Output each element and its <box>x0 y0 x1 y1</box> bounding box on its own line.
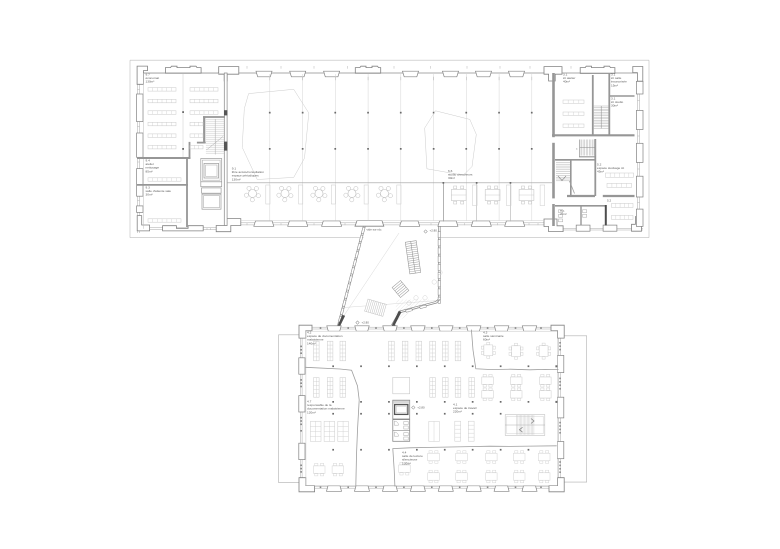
svg-text:130m²: 130m² <box>232 177 241 181</box>
svg-text:120m²: 120m² <box>307 410 316 414</box>
svg-text:85m²: 85m² <box>146 169 153 173</box>
svg-text:45m²: 45m² <box>597 170 604 174</box>
svg-text:5.2: 5.2 <box>607 199 612 203</box>
svg-text:60m²: 60m² <box>483 338 490 342</box>
svg-text:15m²: 15m² <box>611 83 618 87</box>
svg-text:30m²: 30m² <box>146 193 153 197</box>
svg-text:120m²: 120m² <box>402 461 411 465</box>
svg-text:+2.80: +2.80 <box>417 406 425 410</box>
svg-text:+2.80: +2.80 <box>362 321 370 325</box>
svg-text:+2.80: +2.80 <box>430 229 438 233</box>
svg-text:130m²: 130m² <box>146 80 155 84</box>
svg-text:vide sur rdc: vide sur rdc <box>367 228 382 232</box>
svg-text:140m²: 140m² <box>307 341 316 345</box>
svg-text:30m²: 30m² <box>611 104 618 108</box>
svg-text:220m²: 220m² <box>453 410 462 414</box>
svg-text:40m²: 40m² <box>563 80 570 84</box>
svg-text:30m²: 30m² <box>448 176 455 180</box>
